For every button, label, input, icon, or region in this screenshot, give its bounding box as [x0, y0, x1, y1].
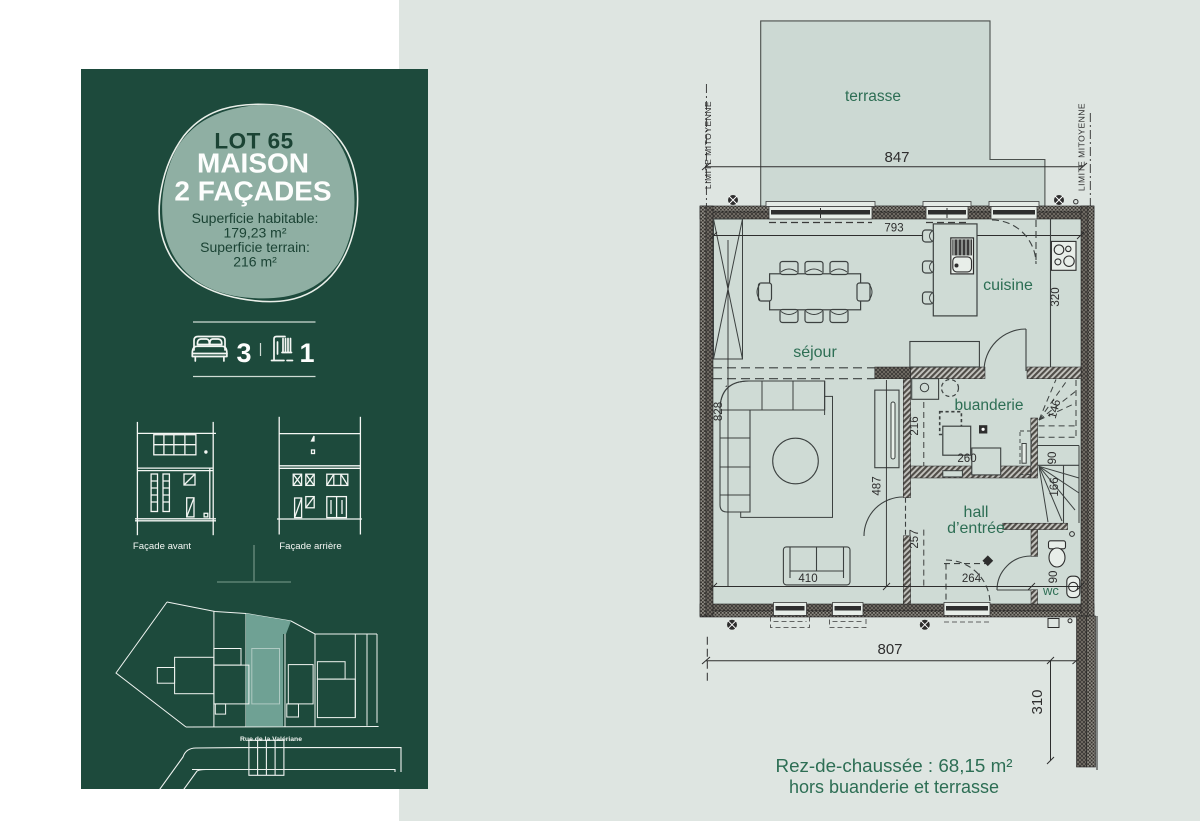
svg-text:257: 257	[909, 529, 921, 548]
svg-text:MAISON: MAISON	[197, 148, 309, 179]
svg-text:1: 1	[299, 338, 314, 368]
svg-text:d’entrée: d’entrée	[947, 520, 1005, 537]
svg-text:LIMITE MITOYENNE: LIMITE MITOYENNE	[1077, 103, 1087, 191]
svg-text:410: 410	[798, 573, 817, 585]
svg-text:264: 264	[962, 573, 982, 585]
svg-text:828: 828	[713, 402, 725, 421]
svg-text:terrasse: terrasse	[845, 88, 901, 105]
svg-text:Rez-de-chaussée : 68,15 m²: Rez-de-chaussée : 68,15 m²	[776, 755, 1013, 776]
svg-text:3: 3	[236, 338, 251, 368]
svg-text:cuisine: cuisine	[983, 277, 1033, 294]
svg-text:wc: wc	[1042, 583, 1059, 598]
svg-text:buanderie: buanderie	[955, 397, 1024, 414]
svg-text:Façade arrière: Façade arrière	[279, 541, 341, 552]
svg-text:Façade avant: Façade avant	[133, 541, 191, 552]
svg-text:320: 320	[1050, 287, 1062, 306]
svg-text:216: 216	[909, 416, 921, 435]
svg-text:793: 793	[884, 223, 903, 235]
svg-text:hors buanderie et terrasse: hors buanderie et terrasse	[789, 777, 999, 797]
svg-text:LIMITE MITOYENNE: LIMITE MITOYENNE	[703, 101, 713, 189]
svg-text:216 m²: 216 m²	[233, 254, 277, 270]
svg-text:2 FAÇADES: 2 FAÇADES	[174, 176, 331, 207]
svg-text:310: 310	[1029, 689, 1046, 714]
svg-text:487: 487	[872, 476, 884, 495]
svg-text:90: 90	[1047, 452, 1059, 465]
svg-text:séjour: séjour	[793, 344, 837, 361]
svg-text:90: 90	[1048, 571, 1060, 584]
svg-text:166: 166	[1049, 477, 1061, 496]
svg-text:847: 847	[884, 149, 909, 166]
svg-text:hall: hall	[964, 504, 989, 521]
svg-text:260: 260	[957, 453, 976, 465]
svg-text:807: 807	[877, 641, 902, 658]
